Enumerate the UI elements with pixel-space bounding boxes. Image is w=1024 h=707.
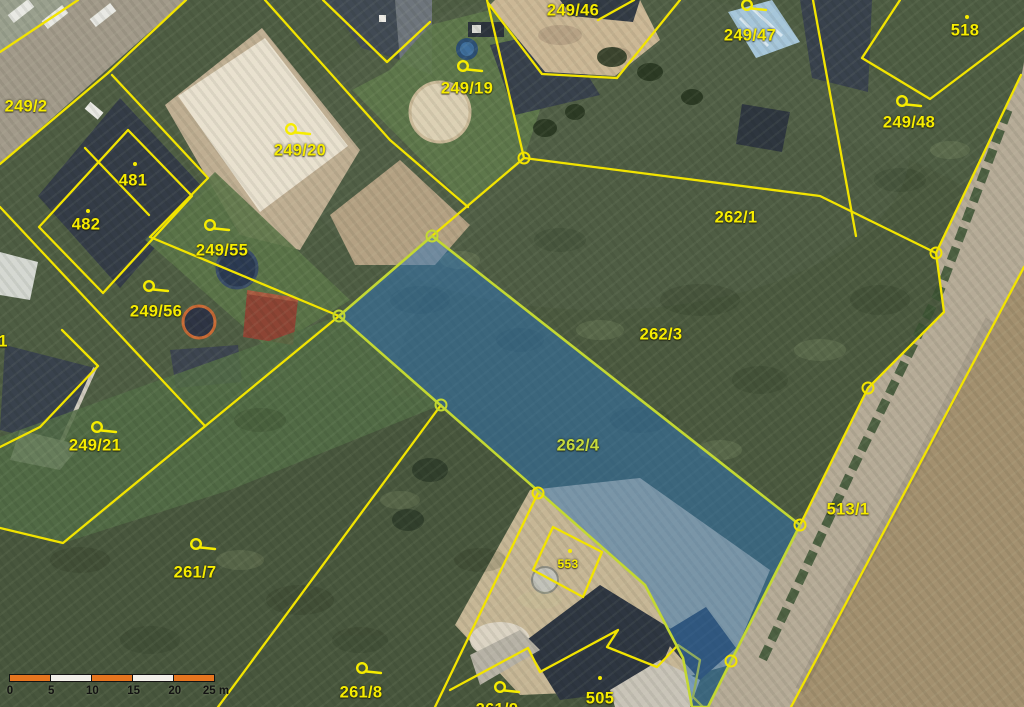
scale-bar-tick: 5	[48, 685, 54, 697]
parcel-label-249-55: 249/55	[196, 242, 248, 261]
house-number-dot	[568, 549, 572, 553]
parcel-label-261-9: 261/9	[476, 701, 519, 707]
scale-bar-segment	[51, 675, 92, 681]
map-viewport[interactable]: 249/2481482249/20249/19249/55249/56249/2…	[0, 0, 1024, 707]
parcel-label-518: 518	[951, 22, 979, 41]
parcel-label-261-8: 261/8	[340, 684, 383, 703]
parcel-label-513-1: 513/1	[827, 501, 870, 520]
scale-bar-segment	[133, 675, 174, 681]
scale-bar-tick: 10	[86, 685, 99, 697]
parcel-label-249-19: 249/19	[441, 80, 493, 99]
parcel-label-481: 481	[119, 172, 147, 191]
parcel-label-505: 505	[586, 690, 614, 707]
parcel-label-249-2: 249/2	[5, 98, 48, 117]
parcel-label-261-7: 261/7	[174, 564, 217, 583]
selected-parcel-highlight[interactable]	[339, 236, 800, 707]
parcel-label-249-56: 249/56	[130, 303, 182, 322]
scale-bar-tick: 25 m	[203, 685, 229, 697]
scale-bar-segment	[10, 675, 51, 681]
parcel-label-262-4: 262/4	[557, 437, 600, 456]
parcel-boundaries	[0, 0, 1024, 707]
parcel-label-262-1: 262/1	[715, 209, 758, 228]
parcel-label-249-21: 249/21	[69, 437, 121, 456]
parcel-label-1: 1	[0, 333, 8, 352]
parcel-label-553: 553	[558, 557, 579, 571]
parcel-label-249-20: 249/20	[274, 142, 326, 161]
scale-bar: 0510152025 m	[9, 674, 215, 682]
scale-bar-tick: 15	[127, 685, 140, 697]
parcel-label-482: 482	[72, 216, 100, 235]
house-number-dot	[86, 209, 90, 213]
scale-bar-segment	[92, 675, 133, 681]
parcel-label-262-3: 262/3	[640, 326, 683, 345]
parcel-label-249-47: 249/47	[724, 27, 776, 46]
parcel-label-249-46: 249/46	[547, 2, 599, 21]
scale-bar-tick: 0	[7, 685, 13, 697]
parcel-label-249-48: 249/48	[883, 114, 935, 133]
house-number-dot	[133, 162, 137, 166]
scale-bar-segments	[9, 674, 215, 682]
scale-bar-segment	[174, 675, 214, 681]
scale-bar-tick: 20	[168, 685, 181, 697]
house-number-dot	[965, 15, 969, 19]
house-number-dot	[598, 676, 602, 680]
